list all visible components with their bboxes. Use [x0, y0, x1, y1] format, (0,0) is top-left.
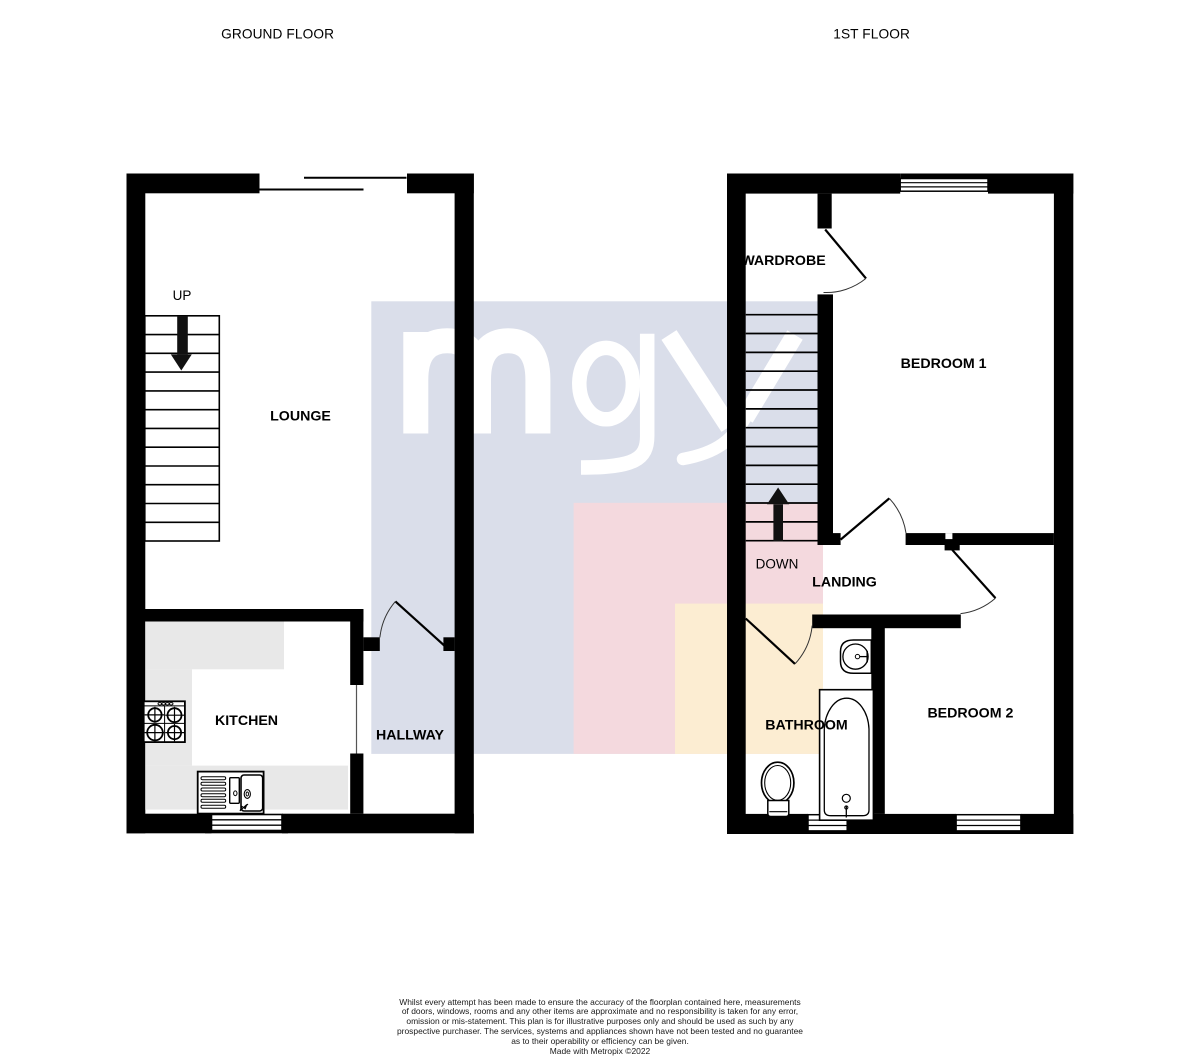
svg-text:BEDROOM 2: BEDROOM 2 [927, 706, 1013, 722]
svg-text:LANDING: LANDING [812, 575, 877, 591]
svg-text:DOWN: DOWN [756, 556, 799, 571]
svg-text:BEDROOM 1: BEDROOM 1 [901, 356, 987, 372]
svg-text:BATHROOM: BATHROOM [765, 718, 848, 734]
svg-text:1ST FLOOR: 1ST FLOOR [833, 27, 910, 42]
svg-text:WARDROBE: WARDROBE [741, 253, 825, 269]
